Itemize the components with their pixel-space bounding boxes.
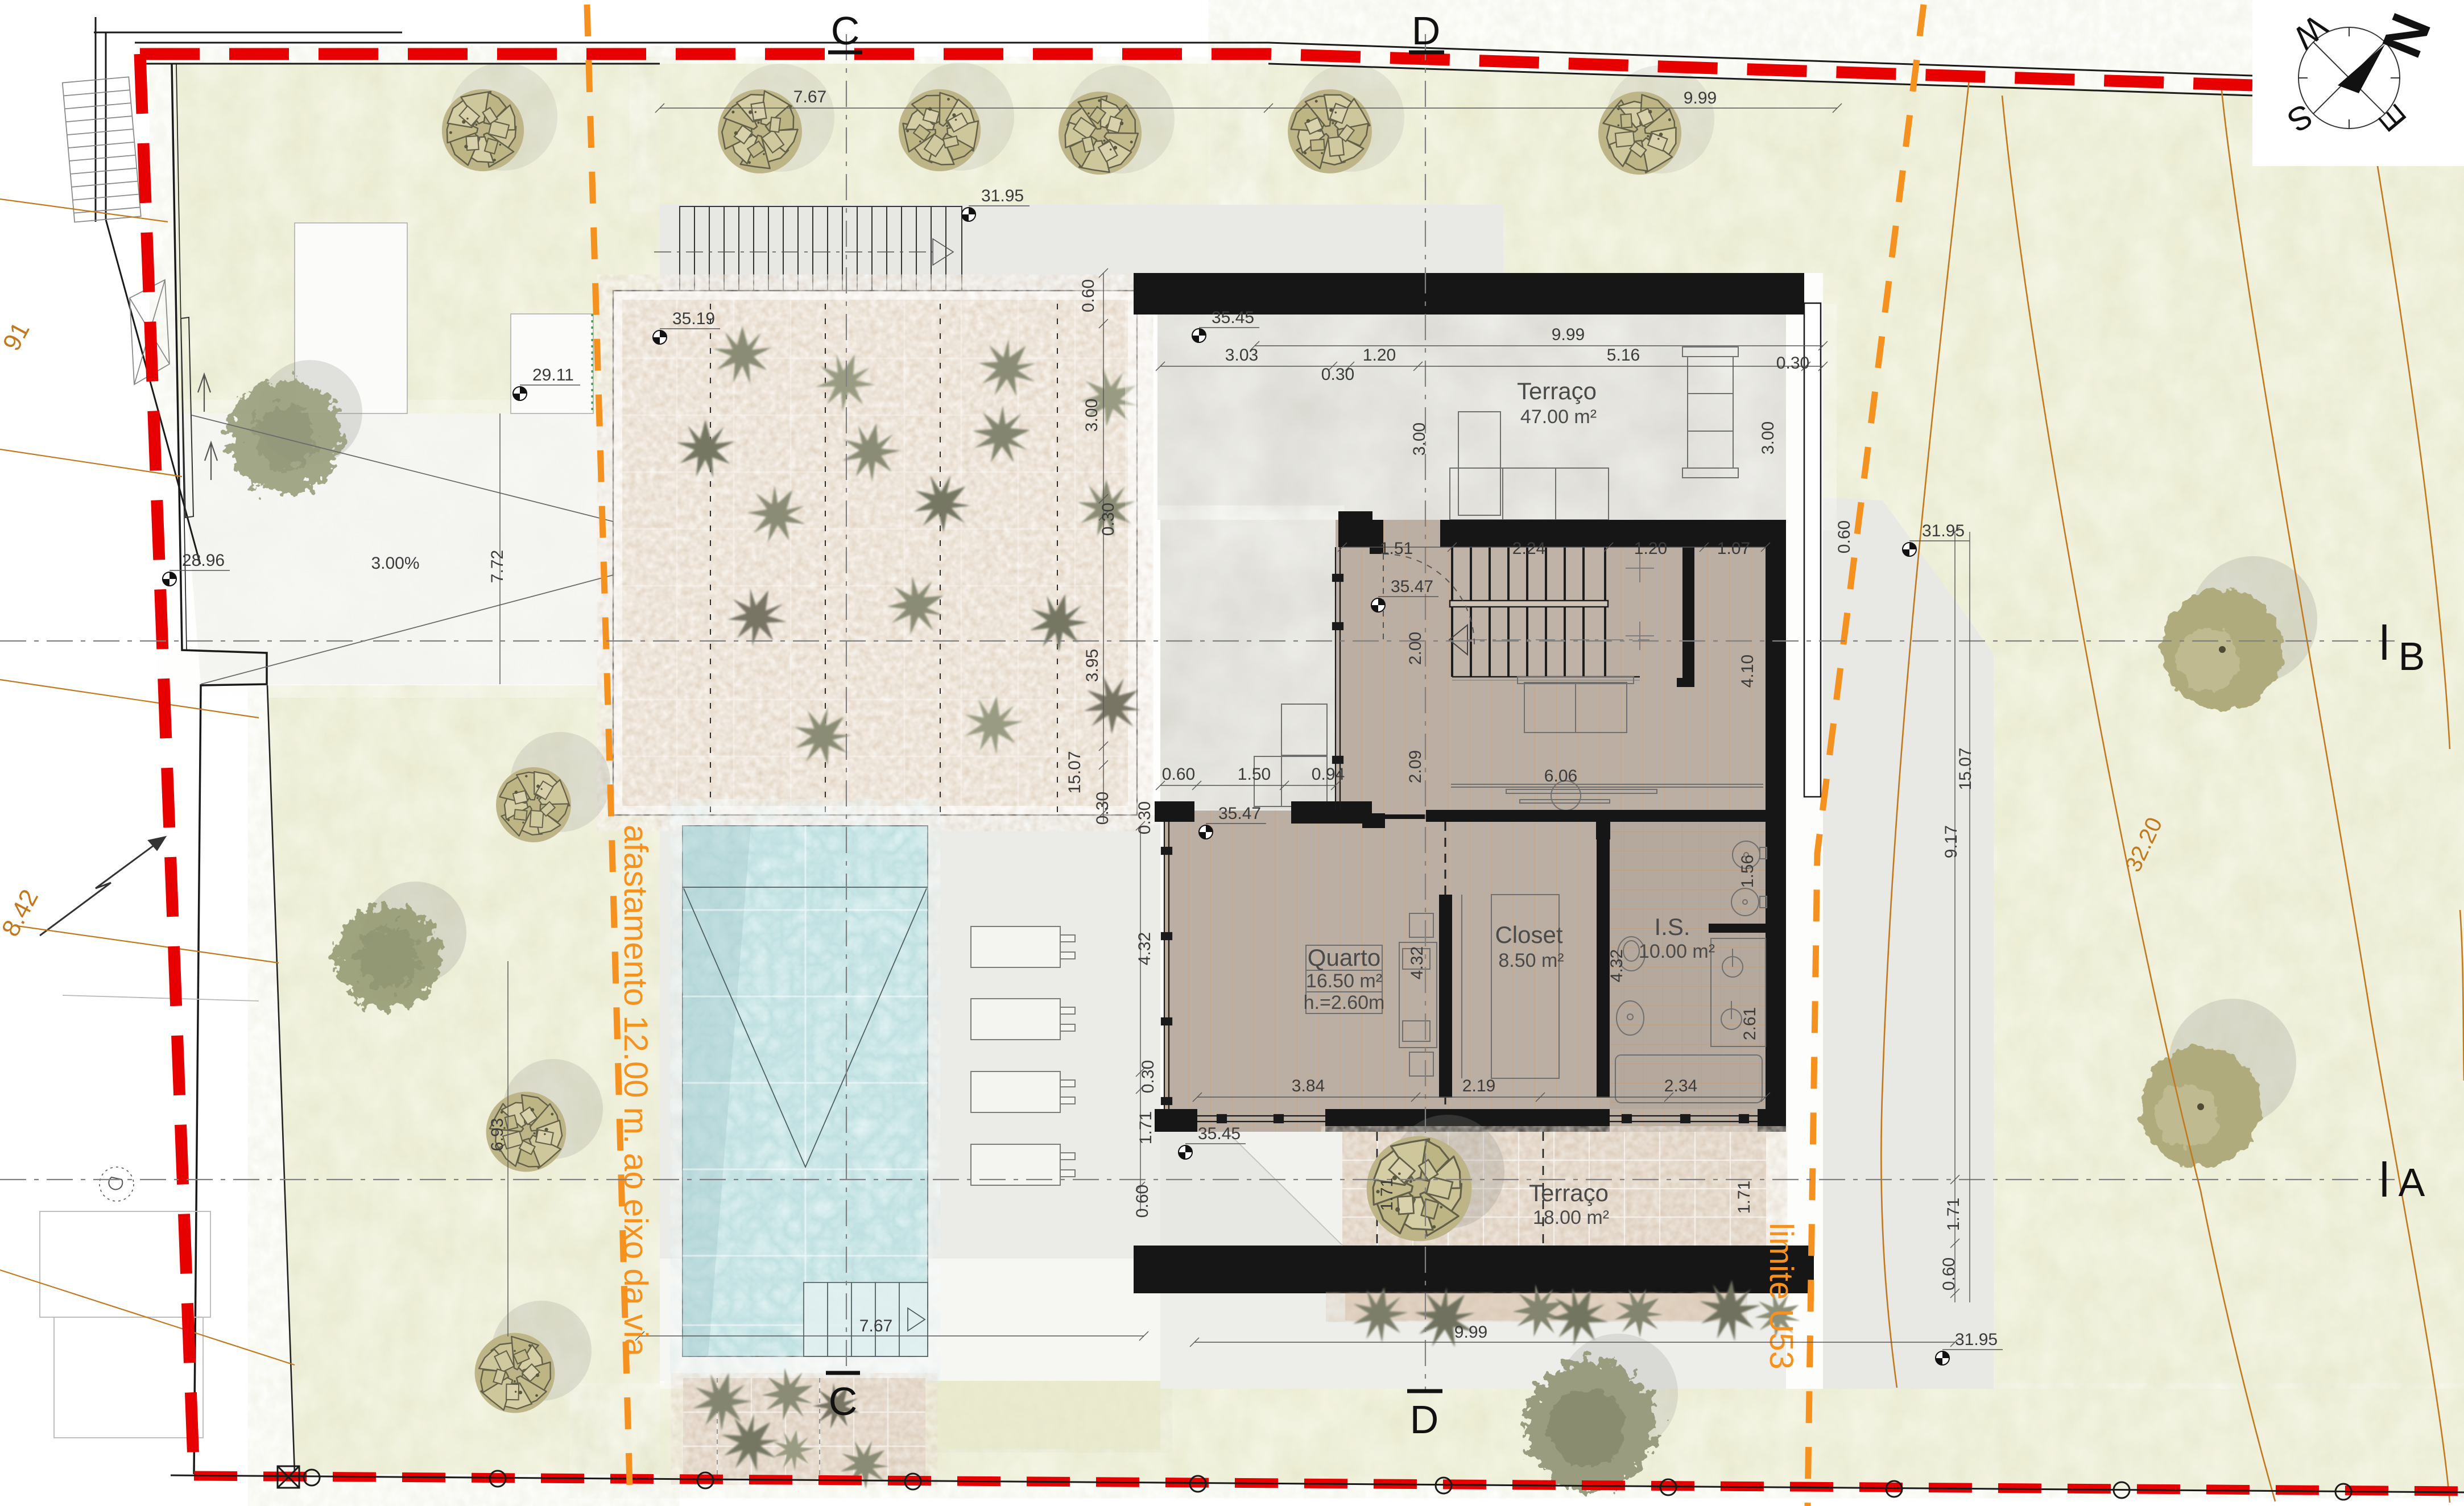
svg-text:16.50 m²: 16.50 m²	[1306, 970, 1382, 992]
svg-text:15.07: 15.07	[1065, 751, 1084, 793]
svg-text:31.95: 31.95	[981, 187, 1024, 205]
svg-text:7.67: 7.67	[859, 1317, 892, 1335]
svg-text:35.47: 35.47	[1218, 804, 1261, 823]
svg-text:Quarto: Quarto	[1308, 944, 1380, 971]
svg-text:4.32: 4.32	[1607, 949, 1626, 982]
svg-text:3.00%: 3.00%	[371, 554, 419, 573]
svg-text:0.94: 0.94	[1312, 765, 1345, 784]
svg-text:10.00 m²: 10.00 m²	[1639, 941, 1715, 962]
svg-text:1.71: 1.71	[1735, 1181, 1754, 1214]
svg-text:Terraço: Terraço	[1517, 378, 1597, 404]
svg-text:3.95: 3.95	[1083, 649, 1102, 682]
svg-text:B: B	[2399, 634, 2425, 678]
svg-text:Closet: Closet	[1495, 921, 1562, 948]
svg-text:0.60: 0.60	[1162, 765, 1195, 784]
svg-text:47.00 m²: 47.00 m²	[1520, 406, 1597, 428]
svg-text:C: C	[829, 1379, 858, 1424]
svg-text:7.72: 7.72	[488, 550, 507, 583]
svg-text:3.00: 3.00	[1759, 421, 1777, 454]
svg-text:0.60: 0.60	[1835, 520, 1854, 553]
svg-text:4.32: 4.32	[1408, 946, 1427, 979]
svg-text:D: D	[1410, 1397, 1439, 1442]
svg-text:1.51: 1.51	[1380, 539, 1413, 558]
svg-text:31.95: 31.95	[1955, 1330, 1998, 1349]
svg-text:6.93: 6.93	[488, 1118, 507, 1151]
svg-text:35.47: 35.47	[1391, 577, 1433, 596]
svg-text:afastamento 12.00 m. ao eixo d: afastamento 12.00 m. ao eixo da via	[617, 825, 654, 1357]
svg-text:2.19: 2.19	[1462, 1077, 1495, 1095]
svg-text:2.00: 2.00	[1406, 632, 1425, 665]
svg-text:0.30: 0.30	[1321, 365, 1354, 384]
svg-text:4.32: 4.32	[1135, 932, 1154, 965]
svg-text:1.71: 1.71	[1944, 1198, 1963, 1231]
svg-text:2.61: 2.61	[1740, 1007, 1759, 1040]
svg-text:5.16: 5.16	[1607, 346, 1640, 365]
svg-text:9.99: 9.99	[1454, 1323, 1487, 1342]
svg-text:35.45: 35.45	[1212, 308, 1254, 327]
svg-text:15.07: 15.07	[1956, 747, 1975, 790]
svg-text:1.07: 1.07	[1717, 539, 1750, 558]
svg-text:1.71: 1.71	[1136, 1111, 1155, 1144]
svg-text:3.00: 3.00	[1082, 399, 1101, 432]
svg-text:2.34: 2.34	[1664, 1077, 1697, 1095]
svg-text:8.50 m²: 8.50 m²	[1498, 950, 1564, 971]
svg-text:28.96: 28.96	[182, 551, 225, 570]
svg-text:1.20: 1.20	[1634, 539, 1667, 558]
svg-text:4.10: 4.10	[1738, 655, 1757, 688]
svg-text:0.30: 0.30	[1139, 1060, 1157, 1093]
svg-text:D: D	[1412, 9, 1441, 53]
svg-text:I.S.: I.S.	[1654, 913, 1690, 940]
svg-text:0.30: 0.30	[1135, 801, 1154, 834]
svg-text:0.60: 0.60	[1079, 279, 1098, 312]
svg-text:3.00: 3.00	[1410, 423, 1429, 456]
svg-text:1.50: 1.50	[1238, 765, 1271, 784]
svg-text:7.67: 7.67	[793, 88, 826, 106]
svg-text:18.00 m²: 18.00 m²	[1533, 1207, 1609, 1228]
svg-text:29.11: 29.11	[532, 366, 574, 384]
svg-text:3.84: 3.84	[1292, 1077, 1325, 1095]
svg-text:2.09: 2.09	[1406, 750, 1425, 783]
svg-text:A: A	[2399, 1160, 2425, 1205]
svg-text:6.06: 6.06	[1544, 767, 1577, 785]
svg-text:1.56: 1.56	[1738, 855, 1757, 888]
svg-text:Terraço: Terraço	[1529, 1180, 1609, 1206]
svg-text:9.17: 9.17	[1942, 825, 1961, 858]
svg-text:3.03: 3.03	[1225, 346, 1258, 365]
svg-text:0.30: 0.30	[1776, 354, 1809, 373]
svg-text:0.30: 0.30	[1099, 503, 1118, 536]
svg-text:0.60: 0.60	[1940, 1257, 1958, 1290]
svg-text:C: C	[831, 9, 860, 53]
svg-text:2.24: 2.24	[1512, 539, 1545, 558]
svg-text:h.=2.60m: h.=2.60m	[1304, 992, 1385, 1013]
svg-text:9.99: 9.99	[1684, 89, 1717, 107]
svg-text:0.60: 0.60	[1133, 1185, 1152, 1218]
svg-text:9.99: 9.99	[1552, 325, 1585, 344]
svg-text:0.30: 0.30	[1093, 792, 1112, 825]
svg-text:31.95: 31.95	[1922, 522, 1965, 540]
svg-text:1.71: 1.71	[1378, 1178, 1396, 1211]
svg-text:35.19: 35.19	[672, 309, 715, 328]
svg-text:limite U53: limite U53	[1763, 1223, 1800, 1370]
svg-text:35.45: 35.45	[1198, 1124, 1241, 1143]
svg-text:1.20: 1.20	[1363, 346, 1396, 365]
